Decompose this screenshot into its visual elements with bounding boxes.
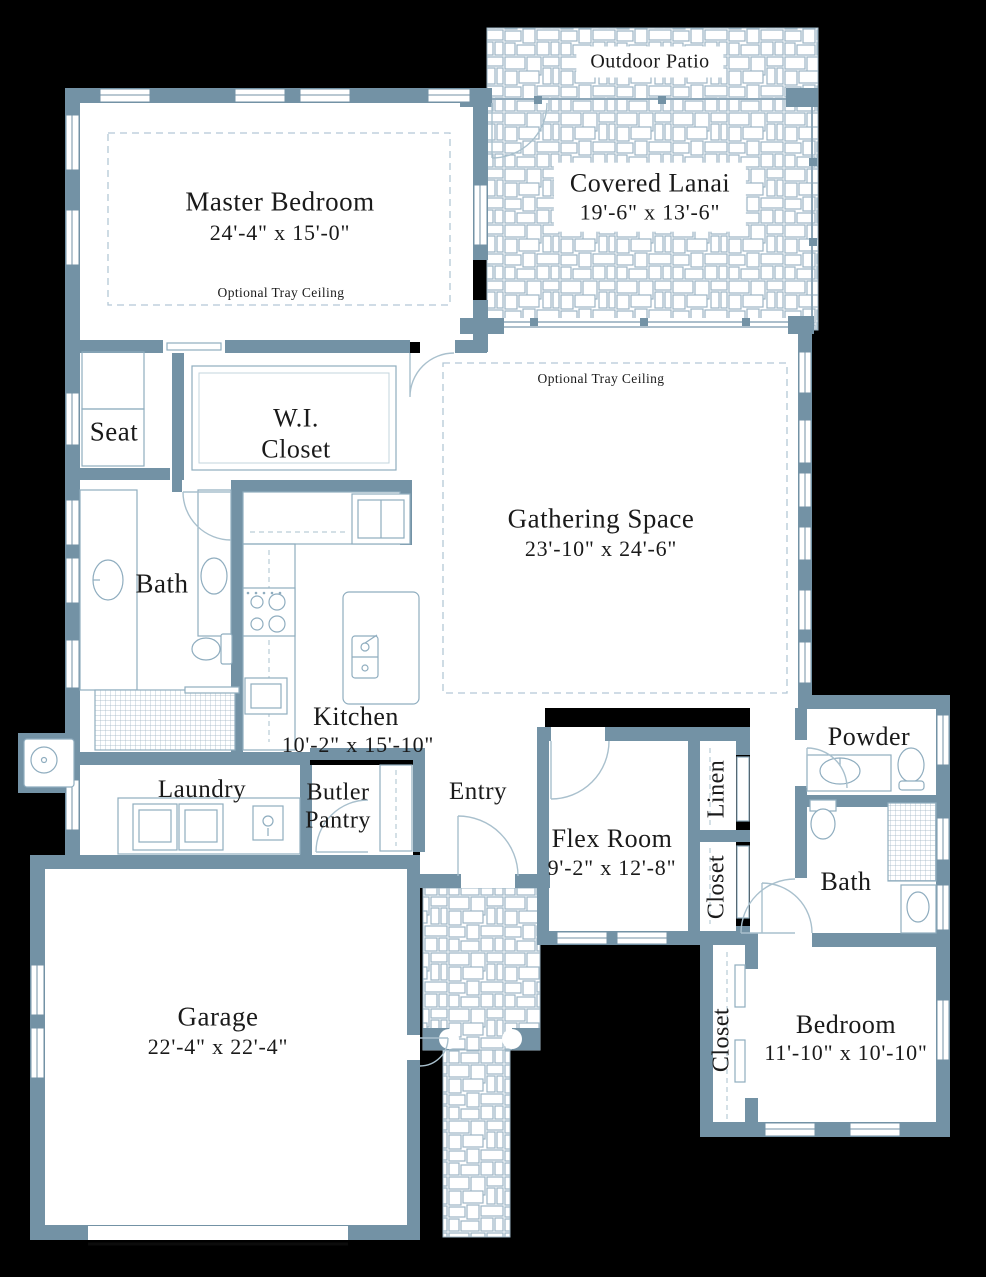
front-porch-pavers (423, 888, 540, 1050)
washer-fixture (133, 804, 177, 850)
master-closet-door-panel (167, 343, 221, 350)
label-bedroom-closet: Closet (709, 1008, 736, 1072)
label-master-bath: Bath (136, 569, 189, 600)
kitchen-island (343, 592, 419, 704)
garage-door (88, 1226, 348, 1244)
label-garage: Garage (178, 1002, 259, 1033)
label-garage-dims: 22'-4" x 22'-4" (148, 1034, 289, 1060)
toilet-fixture (810, 800, 836, 839)
label-master-bedroom: Master Bedroom (185, 187, 374, 218)
label-flex-room: Flex Room (552, 824, 673, 854)
covered-lanai-name: Covered Lanai (570, 169, 730, 200)
wi-closet-line1: W.I. (261, 403, 330, 434)
label-butler-pantry: Butler Pantry (305, 779, 371, 836)
label-master-bedroom-dims: 24'-4" x 15'-0" (210, 220, 351, 246)
floor-plan-drawing (0, 0, 986, 1277)
covered-lanai-dims: 19'-6" x 13'-6" (570, 199, 730, 225)
label-bedroom: Bedroom (796, 1010, 896, 1040)
label-kitchen-dims: 10'-2" x 15'-10" (282, 732, 434, 758)
label-powder: Powder (828, 722, 910, 752)
label-laundry: Laundry (158, 776, 246, 804)
label-gathering-space: Gathering Space (508, 504, 695, 535)
label-gathering-tray-note: Optional Tray Ceiling (538, 371, 665, 387)
butler-pantry-line1: Butler (305, 779, 371, 807)
floor-plan-canvas: Outdoor Patio Covered Lanai 19'-6" x 13'… (0, 0, 986, 1277)
shower-fixture (95, 690, 235, 750)
label-seat: Seat (90, 417, 139, 448)
walkway-pavers (443, 1050, 510, 1237)
label-bedroom-dims: 11'-10" x 10'-10" (764, 1040, 927, 1066)
utility-fixture (24, 739, 74, 787)
dryer-fixture (179, 804, 223, 850)
label-outdoor-patio: Outdoor Patio (576, 47, 723, 78)
wi-closet-line2: Closet (261, 434, 330, 465)
label-bath2: Bath (820, 867, 871, 897)
label-wi-closet: W.I. Closet (261, 403, 330, 464)
label-flex-closet: Closet (704, 855, 731, 919)
label-gathering-space-dims: 23'-10" x 24'-6" (525, 536, 677, 562)
butler-pantry-line2: Pantry (305, 807, 371, 835)
label-covered-lanai: Covered Lanai 19'-6" x 13'-6" (554, 163, 746, 232)
stove-fixture (243, 588, 295, 636)
label-master-tray-note: Optional Tray Ceiling (218, 285, 345, 301)
label-linen: Linen (704, 760, 731, 818)
shower-fixture (888, 803, 936, 881)
label-kitchen: Kitchen (313, 702, 399, 732)
toilet-fixture (898, 748, 924, 790)
label-flex-room-dims: 9'-2" x 12'-8" (548, 855, 677, 881)
label-entry: Entry (449, 778, 507, 806)
